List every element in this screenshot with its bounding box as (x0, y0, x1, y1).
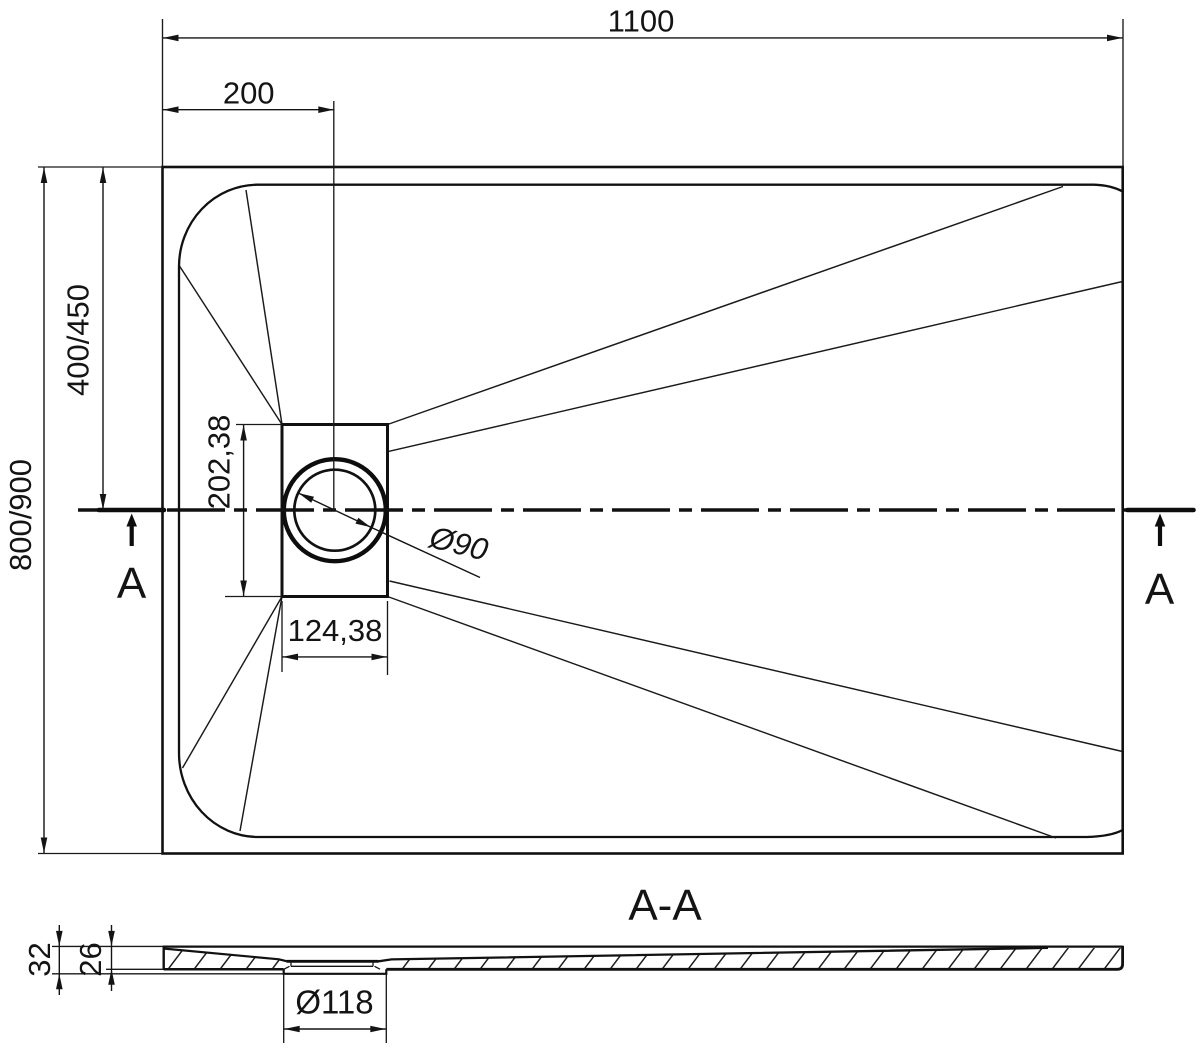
svg-text:202,38: 202,38 (202, 415, 237, 510)
svg-text:124,38: 124,38 (288, 613, 383, 648)
svg-text:200: 200 (223, 76, 275, 111)
svg-text:A: A (1145, 565, 1175, 614)
svg-text:26: 26 (73, 942, 108, 976)
svg-text:A-A: A-A (628, 881, 702, 930)
svg-text:400/450: 400/450 (61, 284, 96, 396)
svg-text:Ø90: Ø90 (425, 519, 491, 567)
svg-text:800/900: 800/900 (3, 459, 38, 571)
svg-text:Ø118: Ø118 (295, 984, 373, 1021)
svg-text:1100: 1100 (608, 4, 675, 39)
svg-text:A: A (117, 559, 147, 608)
svg-text:32: 32 (22, 942, 57, 976)
